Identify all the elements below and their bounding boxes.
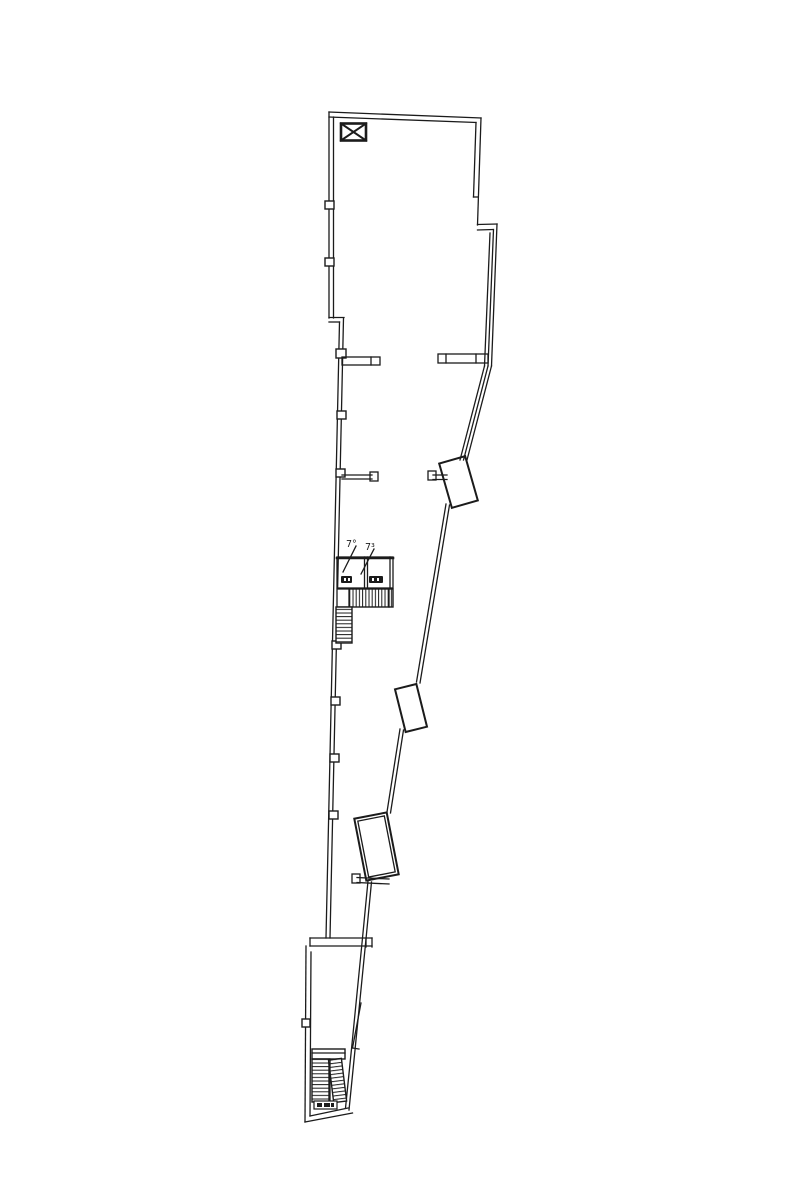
bottom-wall: [305, 1108, 353, 1122]
room-label-right: 7³: [365, 542, 375, 553]
shaft-box-upper: [439, 456, 478, 508]
room-block: 7° 7³: [337, 539, 393, 588]
stair-run-icon: [349, 589, 393, 607]
shaft-box-middle: [395, 684, 427, 732]
shafts: [354, 456, 478, 880]
floor-plan: 7° 7³: [0, 0, 800, 1200]
wall-node-icon: [329, 811, 338, 819]
wall-node-icon: [325, 258, 334, 266]
stair-landing: [312, 1049, 345, 1059]
room-label-left: 7°: [346, 539, 357, 550]
partitions: [342, 354, 488, 884]
wall-node-icon: [302, 1019, 310, 1027]
diagonal-wall-2: [417, 504, 450, 683]
stair-run-icon: [336, 607, 352, 643]
stair-run-icon: [312, 1059, 329, 1102]
wall-node-icon: [336, 469, 345, 477]
wall-node-icon: [330, 754, 339, 762]
floor-plan-canvas: 7° 7³: [0, 0, 800, 1200]
stair-lower: [312, 1049, 347, 1109]
wall-node-icon: [325, 201, 334, 209]
partition-stub-left: [342, 472, 378, 481]
stair-landing: [337, 589, 349, 607]
right-wall-lower: [485, 224, 498, 366]
fixture-mark: [341, 576, 383, 583]
shaft-box-lower: [354, 812, 398, 880]
stair-run-icon: [328, 1058, 346, 1102]
column-marker-icon: [341, 124, 366, 141]
wall-node-icon: [331, 697, 340, 705]
top-wall: [329, 112, 481, 123]
left-wall-lower: [305, 946, 311, 1122]
diagonal-wall-4: [346, 881, 372, 1110]
wall-node-icon: [337, 411, 346, 419]
partition-upper-left: [342, 357, 380, 365]
stair-upper: [336, 589, 393, 643]
diagonal-wall-3: [387, 729, 404, 813]
stair-direction-mark: [314, 1101, 337, 1109]
diagonal-wall-1: [460, 366, 492, 460]
partition-upper-right: [438, 354, 488, 363]
left-wall-upper: [329, 112, 344, 322]
right-wall-upper: [474, 118, 498, 230]
